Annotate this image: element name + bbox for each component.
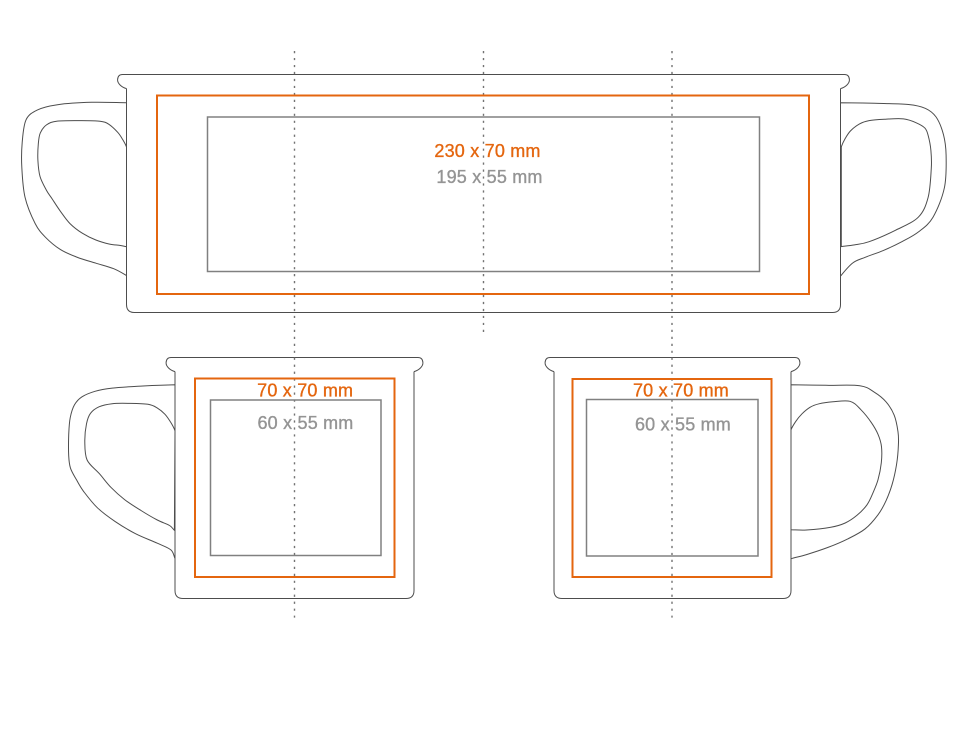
svg-text:70 x 70 mm: 70 x 70 mm (633, 381, 729, 401)
svg-text:60 x 55 mm: 60 x 55 mm (257, 413, 353, 433)
svg-text:195 x 55 mm: 195 x 55 mm (436, 167, 542, 187)
svg-text:230 x 70 mm: 230 x 70 mm (434, 141, 540, 161)
svg-text:60 x 55 mm: 60 x 55 mm (635, 415, 731, 435)
svg-text:70 x 70 mm: 70 x 70 mm (257, 381, 353, 401)
